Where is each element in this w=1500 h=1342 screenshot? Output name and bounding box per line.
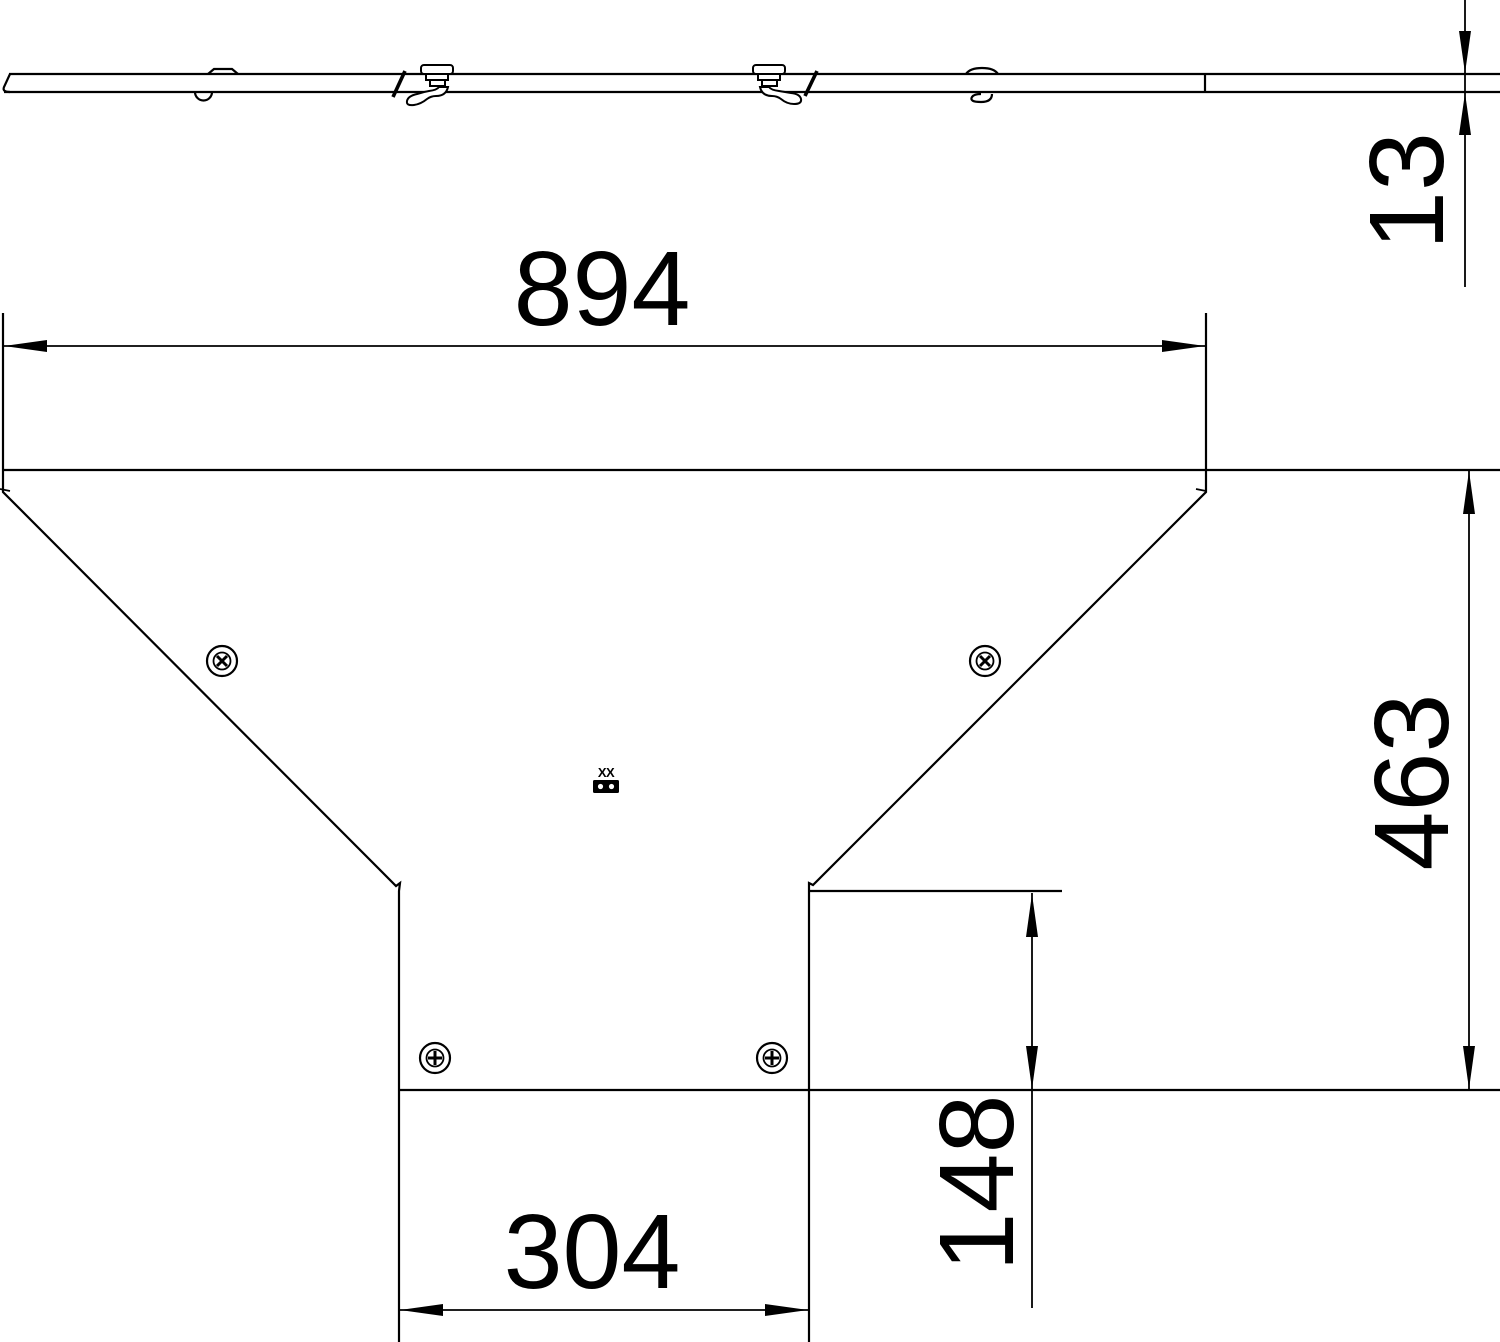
screw-icon [757,1043,787,1073]
dim-arrow-icon [4,340,47,352]
type-label-plate-hole [598,784,603,789]
type-label-plate-hole [609,784,614,789]
rim-fold-tick-left [0,489,10,491]
side-view: 13 [4,0,1500,287]
dim-offset-value: 148 [918,1095,1036,1272]
dim-depth: 463 [1353,470,1475,1090]
type-label-text: XX [598,765,615,780]
dim-arrow-icon [1459,31,1471,73]
cover-left-end [4,74,10,92]
turnbuckle-fastener-icon [407,65,453,105]
dim-overall-width-value: 894 [514,230,691,348]
dim-overall-width: 894 [3,230,1206,352]
tee-outline-left [3,313,400,1342]
dim-arrow-icon [1463,471,1475,514]
clip-tab-icon [195,92,212,101]
dim-offset: 148 [918,893,1038,1308]
dim-arrow-icon [1162,340,1205,352]
dim-arrow-icon [1459,93,1471,135]
rim-fold-tick-right [1196,489,1206,491]
screw-icon [207,646,237,676]
type-label-plate [593,780,619,793]
dim-branch-width: 304 [399,1193,809,1316]
screw-icon [420,1043,450,1073]
clip-tab-icon [971,94,992,102]
drawing-sheet: 13 [0,0,1500,1342]
dim-arrow-icon [400,1304,443,1316]
drawing-canvas: 13 [0,0,1500,1342]
plan-view: XX 894 463 148 [0,230,1500,1342]
dim-branch-width-value: 304 [504,1193,681,1311]
dim-thickness: 13 [1348,0,1471,287]
dim-depth-value: 463 [1353,694,1471,871]
turnbuckle-fastener-icon [753,65,801,104]
dim-arrow-icon [1463,1046,1475,1089]
type-label: XX [593,765,619,793]
dim-arrow-icon [765,1304,808,1316]
dim-arrow-icon [1026,1046,1038,1089]
dim-arrow-icon [1026,894,1038,937]
screw-icon [970,646,1000,676]
dim-thickness-value: 13 [1348,132,1466,250]
